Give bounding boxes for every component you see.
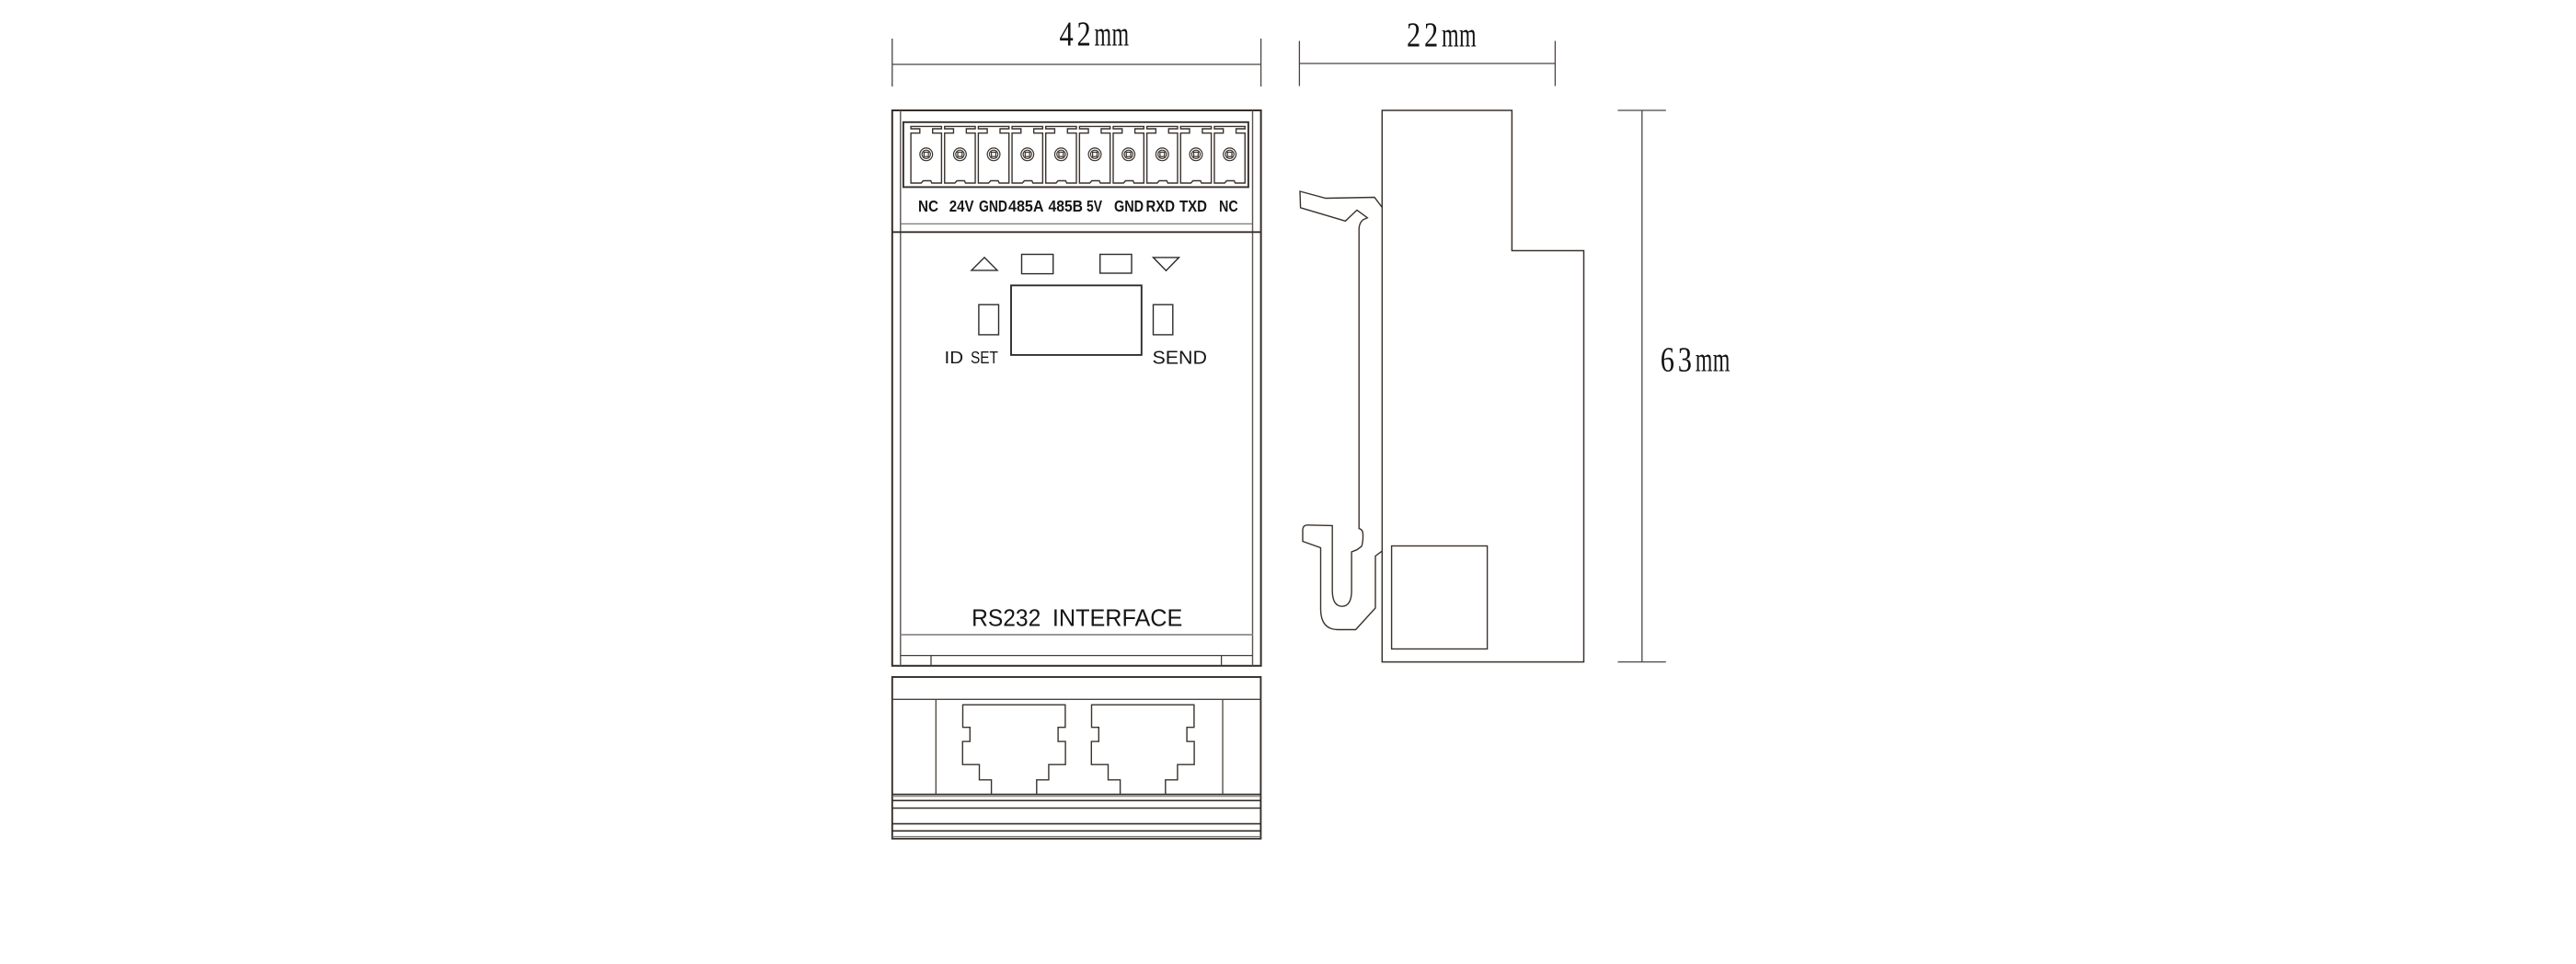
svg-text:TXD: TXD bbox=[1179, 197, 1207, 215]
svg-text:m: m bbox=[1095, 15, 1112, 53]
svg-text:485A: 485A bbox=[1008, 197, 1044, 215]
svg-text:ID: ID bbox=[945, 348, 964, 367]
svg-text:RS232: RS232 bbox=[972, 604, 1041, 632]
svg-text:GND: GND bbox=[979, 197, 1007, 215]
svg-text:m: m bbox=[1459, 16, 1477, 54]
svg-text:m: m bbox=[1696, 340, 1713, 379]
svg-text:2: 2 bbox=[1077, 15, 1091, 53]
svg-text:GND: GND bbox=[1114, 197, 1144, 215]
svg-text:SEND: SEND bbox=[1153, 349, 1207, 369]
svg-text:m: m bbox=[1442, 16, 1459, 54]
svg-text:RXD: RXD bbox=[1146, 197, 1176, 215]
svg-text:m: m bbox=[1713, 340, 1731, 379]
svg-text:3: 3 bbox=[1678, 340, 1692, 379]
svg-text:24V: 24V bbox=[949, 197, 974, 215]
svg-text:2: 2 bbox=[1407, 16, 1420, 54]
svg-text:SET: SET bbox=[971, 348, 998, 367]
svg-text:6: 6 bbox=[1661, 340, 1674, 379]
svg-text:2: 2 bbox=[1424, 16, 1438, 54]
svg-text:NC: NC bbox=[918, 197, 938, 215]
svg-text:5V: 5V bbox=[1087, 197, 1102, 215]
svg-text:INTERFACE: INTERFACE bbox=[1052, 604, 1182, 632]
svg-text:m: m bbox=[1112, 15, 1130, 53]
svg-text:4: 4 bbox=[1060, 15, 1074, 53]
svg-text:485B: 485B bbox=[1049, 197, 1084, 215]
svg-text:NC: NC bbox=[1219, 197, 1238, 215]
